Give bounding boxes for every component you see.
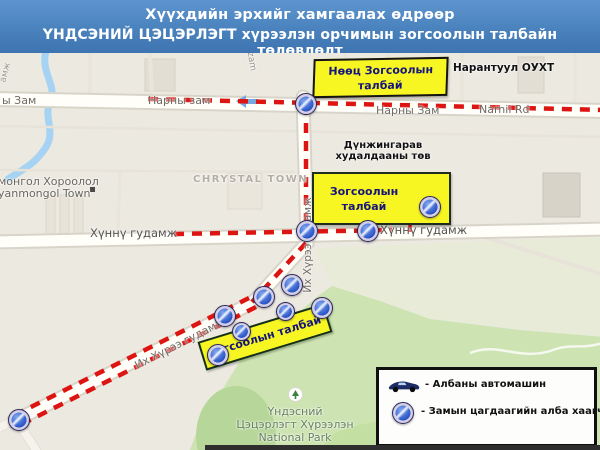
reserve-parking-box: Нөөц Зогсоолын талбай (312, 57, 448, 98)
street-label-narny-partial: ы Зам (2, 94, 36, 107)
police-badge-icon (253, 286, 275, 308)
police-badge-icon (296, 220, 318, 242)
tree-icon (288, 387, 303, 402)
place-label-narantuul: Нарантуул ОУХТ (453, 62, 554, 74)
map-canvas: ы Зам Нарны зам Нарны Зам Narnii Rd Хүнн… (0, 53, 600, 450)
police-badge-icon (295, 93, 317, 115)
building (543, 173, 580, 217)
police-badge-icon (276, 302, 295, 321)
legend-box: - Албаны автомашин - Замын цагдаагийн ал… (376, 367, 597, 447)
building (74, 195, 83, 237)
police-badge-icon (392, 402, 414, 424)
title-banner: Хүүхдийн эрхийг хамгаалах өдрөөр ҮНДСЭНИ… (0, 0, 600, 53)
police-badge-icon (214, 305, 236, 327)
legend-row-car: - Албаны автомашин (379, 376, 594, 398)
police-badge-icon (311, 297, 333, 319)
street-label-narny-left: Нарны зам (148, 94, 210, 107)
building (60, 195, 69, 237)
street-label-khunnu-left: Хүннү гудамж (90, 226, 177, 240)
river (8, 53, 52, 179)
place-label-chrystal-town: CHRYSTAL TOWN (193, 174, 308, 185)
legend-car-label: - Албаны автомашин (425, 379, 546, 390)
police-badge-icon (281, 274, 303, 296)
legend-officer-label: - Замын цагдаагийн алба хаагч (421, 406, 600, 417)
police-badge-icon (8, 409, 30, 431)
police-badge-icon (207, 344, 229, 366)
police-badge-icon (357, 220, 379, 242)
street-label-khunnu-right: Хүннү гудамж (380, 223, 467, 237)
street-label-narnii-rd: Narnii Rd (479, 103, 530, 116)
title-line1: Хүүхдийн эрхийг хамгаалах өдрөөр (0, 7, 600, 23)
building (46, 195, 55, 237)
place-label-dunjingarav: Дүнжингарав худалдааны төв (323, 140, 443, 162)
park-label: Үндэсний Цэцэрлэгт Хүрээлэн National Par… (230, 405, 360, 444)
screenshot-root: Хүүхдийн эрхийг хамгаалах өдрөөр ҮНДСЭНИ… (0, 0, 600, 450)
map-bottom-edge (205, 445, 600, 450)
police-badge-icon (232, 322, 251, 341)
police-car-icon (387, 378, 421, 394)
police-badge-icon (419, 196, 441, 218)
street-label-narny-right: Нарны Зам (376, 104, 439, 117)
legend-row-officer: - Замын цагдаагийн алба хаагч (379, 400, 594, 424)
place-label-buyanmongol-2: yanmongol Town (0, 187, 90, 200)
